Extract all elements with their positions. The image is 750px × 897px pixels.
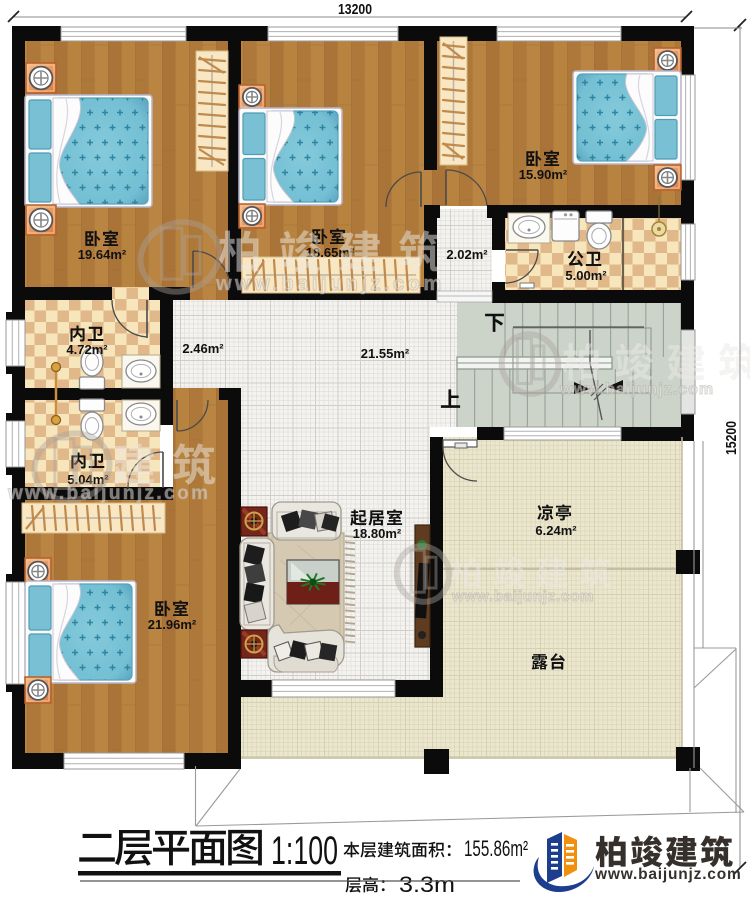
svg-text:3.3m: 3.3m bbox=[399, 872, 455, 897]
svg-text:15200: 15200 bbox=[723, 421, 740, 455]
svg-text:5.00m²: 5.00m² bbox=[565, 268, 607, 283]
svg-text:18.80m²: 18.80m² bbox=[353, 526, 402, 541]
svg-text:www.baijunjz.com: www.baijunjz.com bbox=[559, 381, 714, 398]
svg-text:2.46m²: 2.46m² bbox=[182, 341, 224, 356]
svg-text:www.baijunjz.com: www.baijunjz.com bbox=[451, 588, 594, 605]
svg-text:6.24m²: 6.24m² bbox=[535, 523, 577, 538]
svg-text:19.64m²: 19.64m² bbox=[78, 247, 127, 262]
svg-text:4.72m²: 4.72m² bbox=[66, 342, 108, 357]
svg-text:2.02m²: 2.02m² bbox=[446, 247, 488, 262]
svg-text:www.baijunjz.com: www.baijunjz.com bbox=[594, 866, 742, 883]
svg-text:21.55m²: 21.55m² bbox=[361, 346, 410, 361]
svg-text:15.90m²: 15.90m² bbox=[519, 167, 568, 182]
svg-text:13200: 13200 bbox=[338, 1, 372, 18]
svg-text:1:100: 1:100 bbox=[271, 829, 338, 873]
svg-text:www.baijunjz.com: www.baijunjz.com bbox=[7, 483, 210, 504]
svg-text:www.baijunjz.com: www.baijunjz.com bbox=[215, 273, 445, 295]
svg-text:155.86m²: 155.86m² bbox=[464, 836, 528, 861]
svg-text:21.96m²: 21.96m² bbox=[148, 617, 197, 632]
